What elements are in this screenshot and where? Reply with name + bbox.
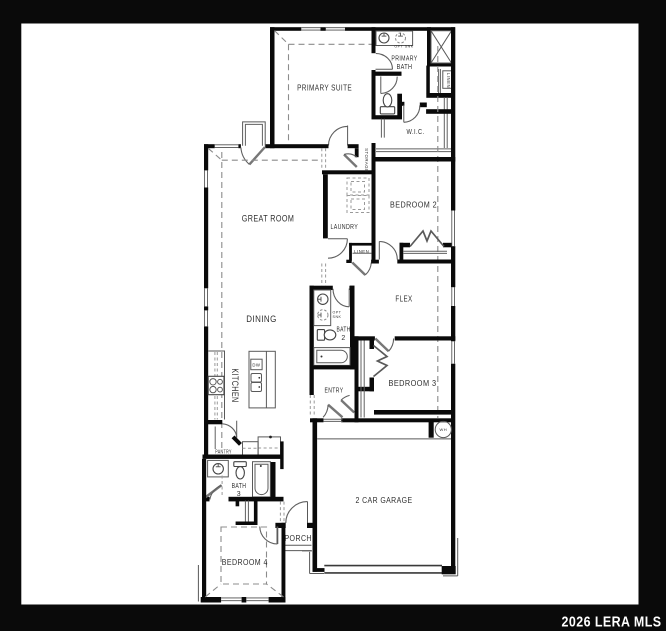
svg-text:WH: WH <box>439 427 447 432</box>
svg-text:ENTRY: ENTRY <box>325 388 344 395</box>
svg-text:DINING: DINING <box>246 314 277 324</box>
svg-text:2 CAR GARAGE: 2 CAR GARAGE <box>356 495 413 505</box>
svg-text:BATH: BATH <box>337 327 351 334</box>
svg-text:2026 LERA MLS: 2026 LERA MLS <box>562 615 662 631</box>
svg-text:KITCHEN: KITCHEN <box>230 368 240 402</box>
svg-text:PRIMARY SUITE: PRIMARY SUITE <box>297 82 352 92</box>
svg-text:BEDROOM 3: BEDROOM 3 <box>389 378 437 388</box>
svg-text:2: 2 <box>341 335 345 342</box>
svg-text:OPT SNK: OPT SNK <box>394 45 413 49</box>
svg-text:BEDROOM 2: BEDROOM 2 <box>390 199 437 209</box>
svg-text:BATH: BATH <box>232 483 247 490</box>
svg-text:LINEN: LINEN <box>446 73 451 88</box>
svg-text:SNK: SNK <box>333 315 342 319</box>
svg-text:FLEX: FLEX <box>395 295 412 304</box>
svg-text:STORAGE: STORAGE <box>364 148 369 172</box>
svg-text:LINEN: LINEN <box>354 249 369 254</box>
svg-text:GREAT ROOM: GREAT ROOM <box>242 214 295 224</box>
svg-text:W.I.C.: W.I.C. <box>407 129 425 136</box>
svg-text:DW: DW <box>252 363 261 368</box>
svg-text:LAUNDRY: LAUNDRY <box>330 222 358 231</box>
svg-text:BEDROOM 4: BEDROOM 4 <box>222 557 268 567</box>
svg-text:BATH: BATH <box>397 64 413 71</box>
svg-text:PORCH: PORCH <box>284 533 312 543</box>
svg-text:PRIMARY: PRIMARY <box>391 56 417 63</box>
